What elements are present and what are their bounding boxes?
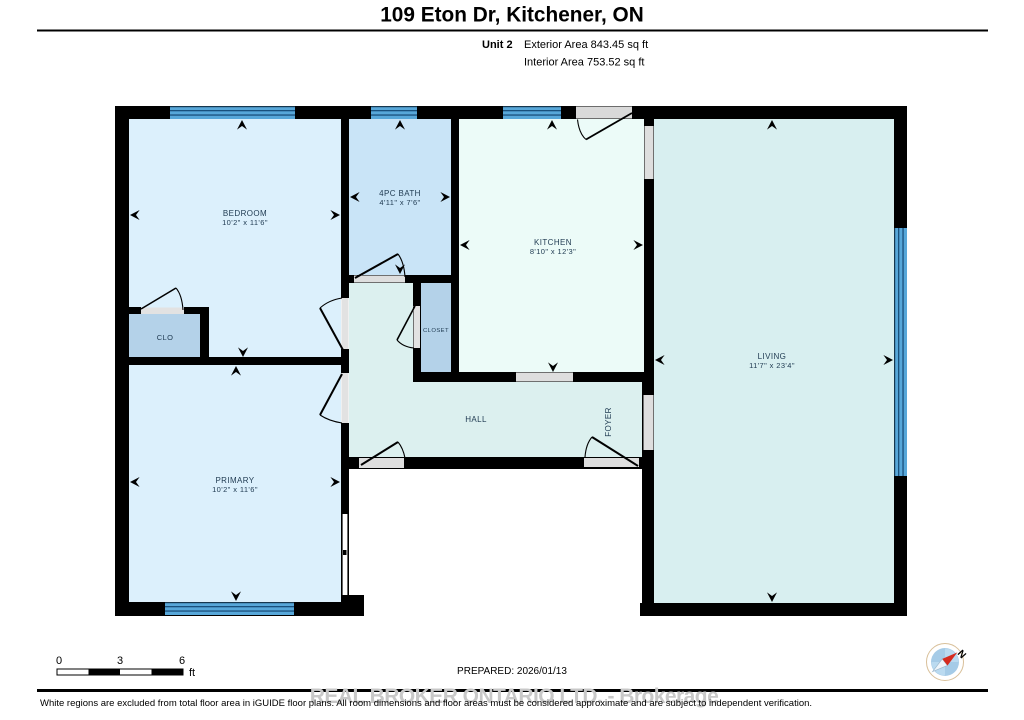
svg-text:8'10" x 12'3": 8'10" x 12'3" (530, 247, 576, 256)
svg-text:FOYER: FOYER (604, 407, 613, 437)
svg-text:4'11" x 7'6": 4'11" x 7'6" (379, 198, 420, 207)
svg-text:109 Eton Dr, Kitchener, ON: 109 Eton Dr, Kitchener, ON (380, 4, 644, 27)
svg-text:Exterior Area 843.45 sq ft: Exterior Area 843.45 sq ft (524, 39, 648, 51)
svg-text:PREPARED: 2026/01/13: PREPARED: 2026/01/13 (457, 666, 567, 677)
svg-text:KITCHEN: KITCHEN (534, 238, 572, 247)
svg-text:10'2" x 11'6": 10'2" x 11'6" (222, 218, 268, 227)
svg-text:BEDROOM: BEDROOM (223, 209, 267, 218)
svg-text:11'7" x 23'4": 11'7" x 23'4" (749, 361, 795, 370)
svg-text:10'2" x 11'6": 10'2" x 11'6" (212, 485, 258, 494)
svg-text:4PC BATH: 4PC BATH (379, 189, 421, 198)
svg-text:CLOSET: CLOSET (423, 328, 449, 334)
svg-text:HALL: HALL (465, 415, 487, 424)
svg-text:White regions are excluded fro: White regions are excluded from total fl… (40, 698, 812, 709)
svg-text:PRIMARY: PRIMARY (215, 476, 254, 485)
svg-text:3: 3 (117, 655, 123, 667)
svg-text:CLO: CLO (157, 333, 174, 342)
svg-text:6: 6 (179, 655, 185, 667)
svg-text:Unit 2: Unit 2 (482, 39, 513, 51)
svg-text:ft: ft (189, 667, 195, 679)
svg-text:LIVING: LIVING (758, 352, 787, 361)
svg-text:0: 0 (56, 655, 62, 667)
svg-text:Interior Area 753.52 sq ft: Interior Area 753.52 sq ft (524, 57, 644, 69)
